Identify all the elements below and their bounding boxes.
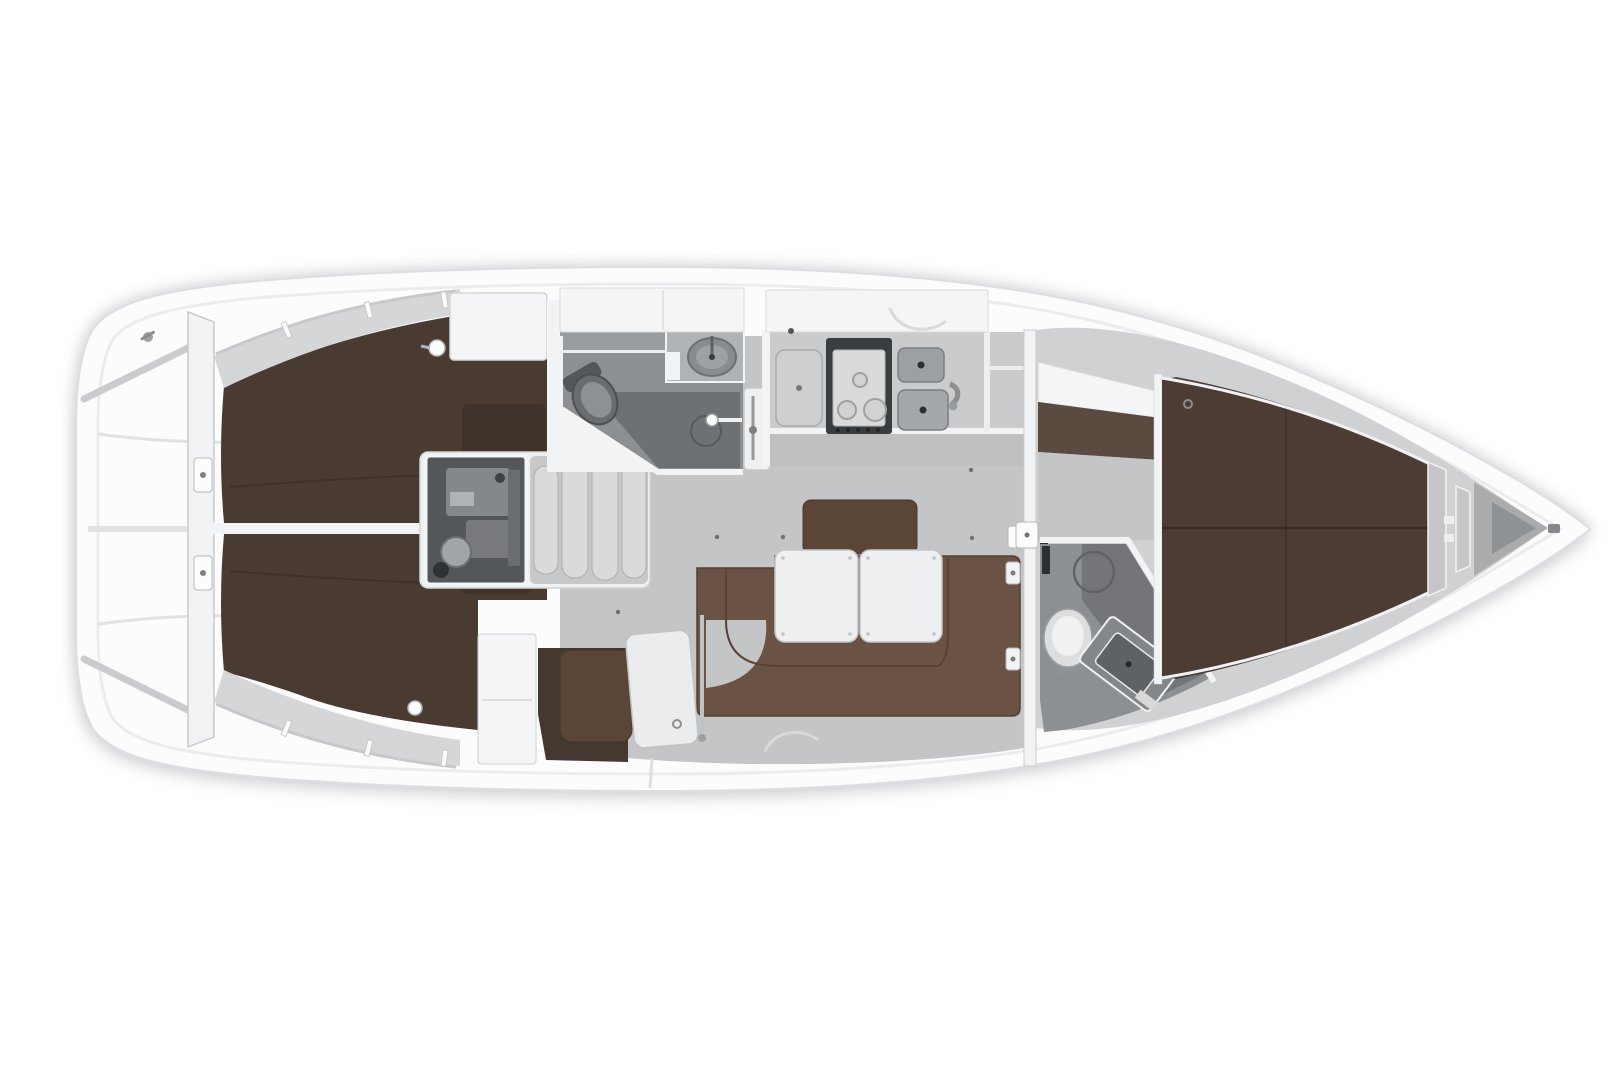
hinge-pin-port xyxy=(200,472,206,478)
bow-bulkhead-second xyxy=(1456,486,1470,572)
overhead-locker-galley xyxy=(766,290,988,332)
shower-head-icon xyxy=(706,414,718,426)
forward-dressing-area xyxy=(1038,362,1160,540)
fridge-latch-icon xyxy=(796,385,802,391)
floor-plan-canvas xyxy=(0,0,1620,1080)
washbasin-vanity xyxy=(666,330,744,382)
hinge-pin-starboard xyxy=(200,570,206,576)
pole-base-icon xyxy=(698,734,706,742)
salon-table-aft xyxy=(775,550,858,642)
reading-light-port-icon xyxy=(429,340,445,356)
bow-fitting-icon xyxy=(1548,524,1560,533)
forward-corridor xyxy=(1038,452,1160,540)
berth-front-edge xyxy=(1154,374,1162,684)
reading-light-starboard-icon xyxy=(408,701,422,715)
nav-seat xyxy=(560,650,632,742)
light-stem-port xyxy=(421,346,430,348)
latch-pin xyxy=(1011,571,1016,576)
bow-bulkhead-main xyxy=(1428,462,1446,596)
engine-companionway xyxy=(420,452,650,588)
counter-front-panel xyxy=(768,434,1024,466)
door-knob-icon xyxy=(749,426,757,434)
bulkhead-handle xyxy=(1444,516,1454,524)
settee-backrest xyxy=(803,500,917,554)
cockpit-seam xyxy=(650,758,652,788)
galley-shelf-line xyxy=(990,366,1024,370)
chart-table xyxy=(625,630,699,749)
galley-left-divider xyxy=(762,330,770,466)
latch-pin xyxy=(1011,657,1016,662)
salon-table-forward xyxy=(860,550,942,642)
deck-fitting-icon xyxy=(788,328,794,334)
hanging-locker-port xyxy=(450,293,547,360)
nav-station xyxy=(478,630,699,764)
aft-heads xyxy=(547,288,770,472)
galley-mid-divider xyxy=(984,332,990,432)
bulkhead-handle xyxy=(1444,534,1454,542)
platform-centerline xyxy=(88,526,188,532)
door-frame-shadow xyxy=(1042,546,1050,574)
latch-pin xyxy=(1025,533,1030,538)
yacht-floor-plan xyxy=(0,0,1620,1080)
overhead-locker-heads xyxy=(560,288,744,332)
stove-icon xyxy=(826,338,892,434)
